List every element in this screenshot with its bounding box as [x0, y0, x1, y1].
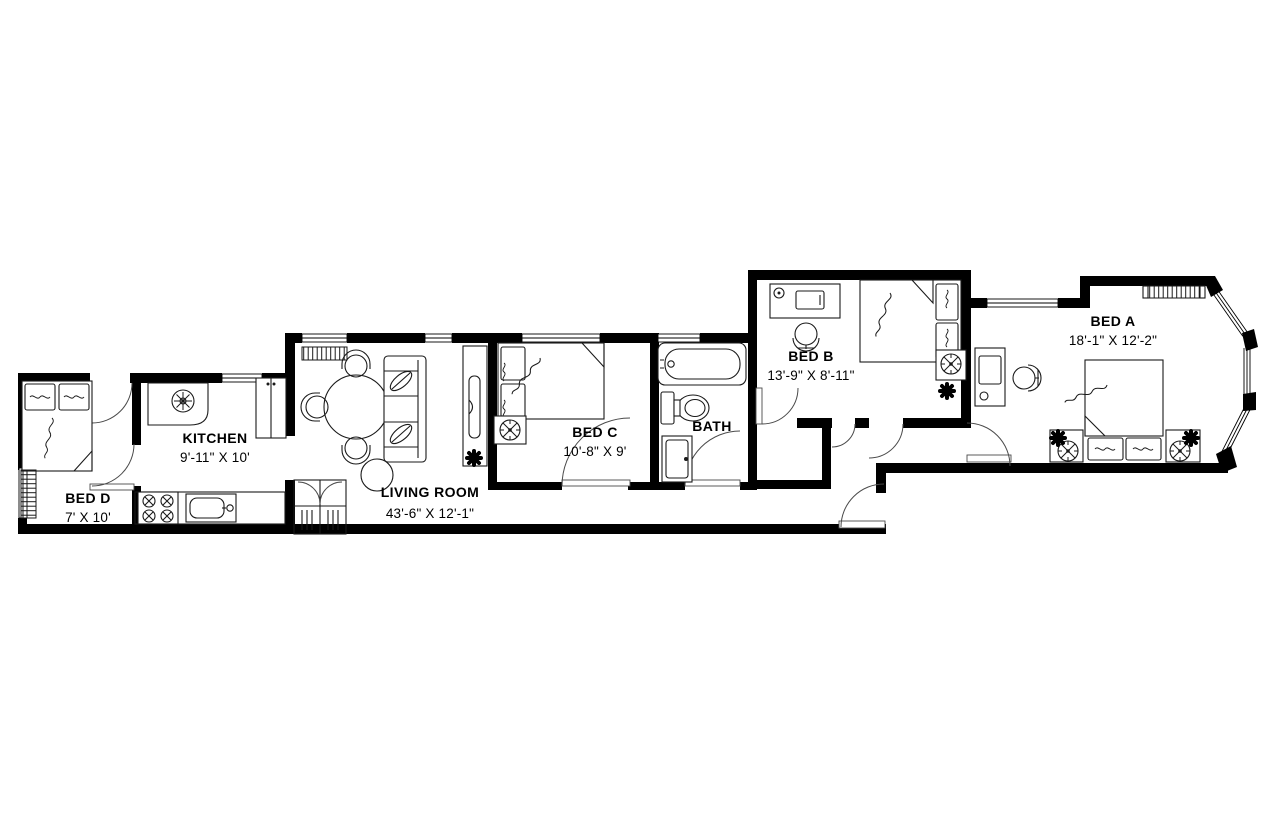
- labels: BED D 7' X 10' KITCHEN 9'-11" X 10' LIVI…: [65, 313, 1157, 525]
- window-bed-c: [522, 334, 600, 342]
- door-bed-b: [756, 388, 798, 424]
- desk: [975, 348, 1005, 406]
- vanity-sink: [662, 436, 692, 482]
- label-bed-b-dims: 13'-9" X 8'-11": [767, 368, 854, 383]
- label-bed-a: BED A: [1090, 313, 1135, 329]
- radiator: [21, 470, 36, 518]
- radiator: [302, 347, 347, 360]
- window-living-2: [425, 334, 452, 342]
- door-bed-d-kitchen: [90, 444, 134, 490]
- door-bed-d-entry: [92, 383, 132, 423]
- sofa: [384, 356, 426, 462]
- door-hall-1: [832, 424, 855, 447]
- dining-chair-n: [342, 350, 370, 377]
- window-living-1: [302, 334, 347, 342]
- bed: [498, 343, 604, 419]
- nightstand: [936, 350, 966, 380]
- label-kitchen-dims: 9'-11" X 10': [180, 450, 250, 465]
- door-bath: [685, 431, 740, 486]
- desk-chair: [793, 323, 819, 351]
- nightstand: [494, 416, 526, 444]
- plant-right: [1184, 431, 1198, 445]
- window-bed-a-top: [987, 299, 1058, 307]
- door-hall-2: [869, 424, 903, 458]
- fridge: [256, 378, 286, 438]
- label-bed-a-dims: 18'-1" X 12'-2": [1069, 333, 1157, 348]
- stove: [138, 492, 178, 524]
- label-bath: BATH: [692, 418, 731, 434]
- room-bath: [658, 343, 746, 482]
- door-bed-a: [967, 423, 1011, 466]
- tv-console: [463, 346, 487, 466]
- plant-left: [1051, 431, 1065, 445]
- floor-plan: BED D 7' X 10' KITCHEN 9'-11" X 10' LIVI…: [0, 0, 1280, 828]
- plant: [467, 451, 481, 465]
- label-living-dims: 43'-6" X 12'-1": [386, 506, 474, 521]
- label-bed-c: BED C: [572, 424, 618, 440]
- desk-chair: [1013, 365, 1041, 391]
- label-kitchen: KITCHEN: [182, 430, 247, 446]
- floor-plan-page: BED D 7' X 10' KITCHEN 9'-11" X 10' LIVI…: [0, 0, 1280, 828]
- label-bed-d: BED D: [65, 490, 111, 506]
- bay-window-e: [1244, 348, 1250, 394]
- label-bed-d-dims: 7' X 10': [65, 510, 111, 525]
- kitchen-sink: [186, 494, 236, 522]
- upper-counter: [148, 383, 208, 425]
- label-living: LIVING ROOM: [381, 484, 480, 500]
- bathtub: [658, 343, 746, 385]
- radiator: [1143, 286, 1205, 298]
- bay-window-se: [1221, 404, 1252, 457]
- desk: [770, 284, 840, 318]
- closet: [294, 480, 346, 534]
- label-bed-c-dims: 10'-8" X 9': [563, 444, 626, 459]
- window-bath: [658, 334, 700, 342]
- plant: [940, 384, 954, 398]
- dining-table: [324, 375, 388, 439]
- dining-chair-s: [342, 437, 370, 464]
- bed: [22, 381, 92, 471]
- label-bed-b: BED B: [788, 348, 834, 364]
